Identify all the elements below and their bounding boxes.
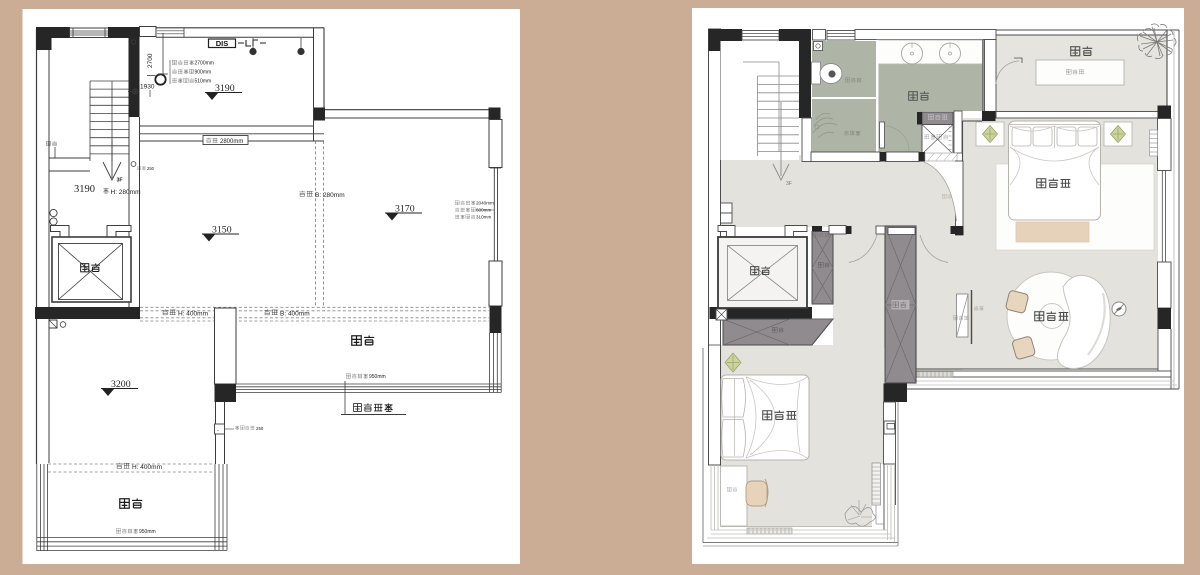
svg-text:B: 400mm: B: 400mm <box>280 311 310 318</box>
svg-text:250: 250 <box>147 166 155 171</box>
svg-text:H: 400mm: H: 400mm <box>178 311 208 318</box>
svg-text:B: 280mm: B: 280mm <box>315 192 345 199</box>
svg-text:3F: 3F <box>786 181 792 187</box>
svg-text:950mm: 950mm <box>139 529 156 535</box>
svg-text:3190: 3190 <box>74 184 95 195</box>
svg-text:2040mm: 2040mm <box>476 201 494 206</box>
svg-text:950mm: 950mm <box>369 374 386 380</box>
svg-text:510mm: 510mm <box>195 79 212 85</box>
svg-text:1930: 1930 <box>140 84 155 91</box>
svg-text:2700mm: 2700mm <box>195 61 214 67</box>
svg-text:310mm: 310mm <box>476 215 491 220</box>
svg-text:H: 400mm: H: 400mm <box>132 464 162 471</box>
svg-text:2800mm: 2800mm <box>220 139 243 145</box>
svg-text:H: 280mm: H: 280mm <box>111 189 141 196</box>
svg-text:250: 250 <box>256 426 264 431</box>
svg-text:3F: 3F <box>117 178 123 184</box>
svg-text:DIS: DIS <box>216 39 229 48</box>
svg-text:900mm: 900mm <box>195 70 212 76</box>
svg-text:2700: 2700 <box>147 53 154 68</box>
